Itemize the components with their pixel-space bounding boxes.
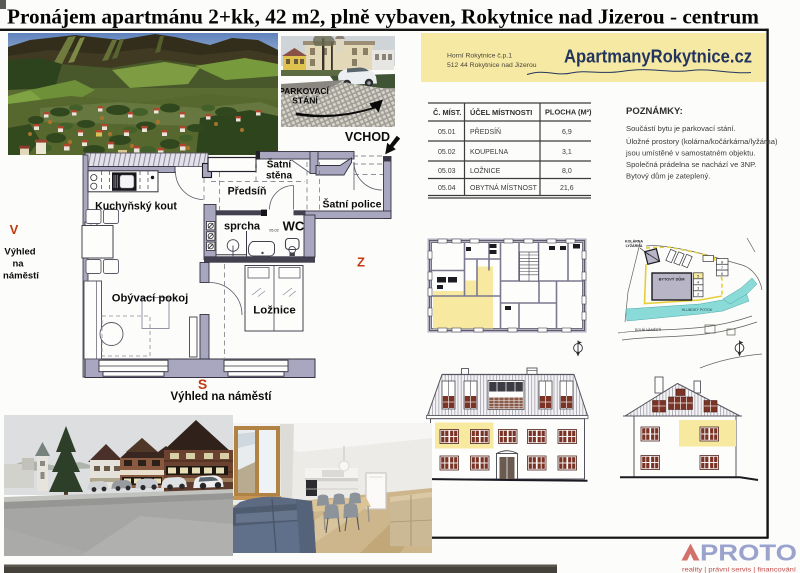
svg-text:Obývací pokoj: Obývací pokoj [112, 293, 188, 305]
svg-text:Předsíň: Předsíň [228, 186, 267, 198]
svg-text:STÁNÍ: STÁNÍ [292, 96, 318, 106]
svg-text:4: 4 [697, 281, 699, 285]
svg-text:05.02: 05.02 [438, 149, 456, 156]
svg-text:LOŽNICE: LOŽNICE [470, 166, 501, 175]
svg-text:HLUBOKÝ POTOK: HLUBOKÝ POTOK [682, 308, 713, 312]
svg-text:PARKOVACÍ: PARKOVACÍ [279, 86, 329, 96]
svg-text:Šatní police: Šatní police [323, 198, 382, 211]
svg-text:KOUPELNA: KOUPELNA [470, 149, 508, 156]
svg-text:8: 8 [721, 260, 723, 264]
svg-text:3,1: 3,1 [562, 149, 572, 156]
svg-text:na: na [12, 259, 24, 270]
svg-text:OBYTNÁ MÍSTNOST: OBYTNÁ MÍSTNOST [470, 183, 538, 192]
svg-text:6,9: 6,9 [562, 129, 572, 136]
svg-text:3: 3 [697, 287, 699, 291]
svg-text:Součástí bytu je parkovací stá: Součástí bytu je parkovací stání. [626, 124, 736, 133]
svg-text:KOLÁRNA: KOLÁRNA [625, 239, 643, 244]
svg-text:PŘEDSÍŇ: PŘEDSÍŇ [470, 127, 501, 136]
svg-text:LYŽÁRNA: LYŽÁRNA [626, 243, 643, 248]
svg-text:6: 6 [721, 272, 723, 276]
svg-text:Úložné prostory (kolárna/kočár: Úložné prostory (kolárna/kočárkárna/lyžá… [626, 137, 778, 146]
svg-text:sprcha: sprcha [224, 221, 261, 233]
svg-text:BYTOVÝ DŮM: BYTOVÝ DŮM [659, 277, 685, 282]
svg-text:05.02: 05.02 [269, 229, 279, 233]
svg-text:DOLNÍ NÁMĚSTÍ: DOLNÍ NÁMĚSTÍ [635, 327, 661, 332]
svg-text:Ložnice: Ložnice [253, 305, 295, 317]
svg-text:2: 2 [697, 293, 699, 297]
svg-text:7: 7 [721, 266, 723, 270]
svg-text:Č. MÍST.: Č. MÍST. [433, 108, 461, 117]
svg-text:VCHOD: VCHOD [345, 130, 390, 144]
svg-text:Výhled na náměstí: Výhled na náměstí [171, 391, 273, 403]
svg-text:V: V [10, 222, 19, 237]
svg-text:Z: Z [357, 255, 365, 270]
svg-text:Pronájem apartmánu 2+kk, 42 m2: Pronájem apartmánu 2+kk, 42 m2, plně vyb… [7, 5, 759, 29]
svg-text:512 44 Rokytnice nad Jizerou: 512 44 Rokytnice nad Jizerou [447, 62, 537, 69]
svg-text:05.03: 05.03 [438, 168, 456, 175]
svg-text:reality | právní servis | fina: reality | právní servis | financování [682, 567, 796, 573]
svg-text:Bytový dům je zateplený.: Bytový dům je zateplený. [626, 172, 710, 181]
svg-text:PROTO: PROTO [700, 540, 797, 566]
svg-text:05.01: 05.01 [438, 129, 456, 136]
svg-text:náměstí: náměstí [3, 271, 39, 282]
svg-text:Společná prádelna se nachází v: Společná prádelna se nachází ve 3NP. [626, 160, 756, 169]
svg-text:WC: WC [283, 219, 305, 234]
svg-text:05.04: 05.04 [438, 185, 456, 192]
svg-text:PLOCHA (M²): PLOCHA (M²) [545, 108, 592, 117]
svg-text:ÚČEL MÍSTNOSTI: ÚČEL MÍSTNOSTI [470, 108, 532, 117]
svg-text:Kuchyňský kout: Kuchyňský kout [95, 201, 177, 213]
svg-text:S: S [198, 376, 207, 392]
svg-text:21,6: 21,6 [560, 185, 574, 192]
svg-text:Šatní: Šatní [267, 158, 293, 171]
svg-text:POZNÁMKY:: POZNÁMKY: [626, 106, 683, 117]
svg-text:stěna: stěna [266, 171, 293, 182]
svg-text:5: 5 [697, 275, 699, 279]
svg-text:Horní Rokytnice č.p.1: Horní Rokytnice č.p.1 [447, 53, 512, 60]
svg-text:jsou umístěné v samostatném ob: jsou umístěné v samostatném objektu. [625, 149, 756, 158]
svg-text:Výhled: Výhled [4, 247, 35, 258]
svg-text:8,0: 8,0 [562, 168, 572, 175]
svg-text:ApartmanyRokytnice.cz: ApartmanyRokytnice.cz [564, 47, 752, 67]
